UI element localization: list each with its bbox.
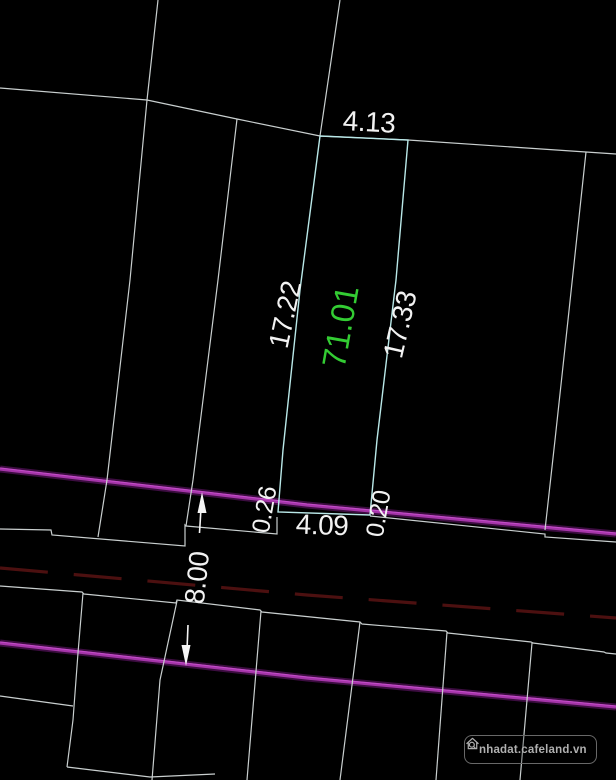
divider-right [545,152,586,530]
top-row-boundary [0,88,616,154]
survey-drawing: 4.13 17.22 71.01 17.33 0.26 4.09 0.20 8.… [0,0,616,780]
road-centerline [0,568,616,618]
upper-divider-left [147,0,158,100]
divider-1 [98,100,147,537]
watermark-badge: nhadat.cafeland.vn [464,735,597,764]
lower-divider-1 [67,593,83,767]
label-left-length: 17.22 [263,278,307,351]
row-bottom-boundary-left [0,517,277,546]
label-road-width: 8.00 [179,550,215,605]
lower-divider-3 [247,611,261,780]
road-width-arrow-down [182,625,191,666]
lower-divider-4 [340,622,360,780]
lower-bottom-boundary [67,767,215,777]
label-front-width: 4.09 [295,508,349,541]
label-back-width: 4.13 [342,105,396,139]
label-right-offset: 0.20 [361,488,397,539]
lower-divider-5 [436,632,447,780]
cadastral-map: 4.13 17.22 71.01 17.33 0.26 4.09 0.20 8.… [0,0,616,780]
lower-boundary-southwest [0,696,73,706]
upper-divider-center [320,0,340,136]
divider-2 [186,119,237,526]
parcel-boundaries [0,0,616,777]
label-right-length: 17.33 [377,288,422,361]
road-edge-lower [0,642,616,707]
watermark-text: nhadat.cafeland.vn [479,744,587,756]
lower-divider-2 [152,601,177,780]
label-parcel-area: 71.01 [315,283,366,371]
